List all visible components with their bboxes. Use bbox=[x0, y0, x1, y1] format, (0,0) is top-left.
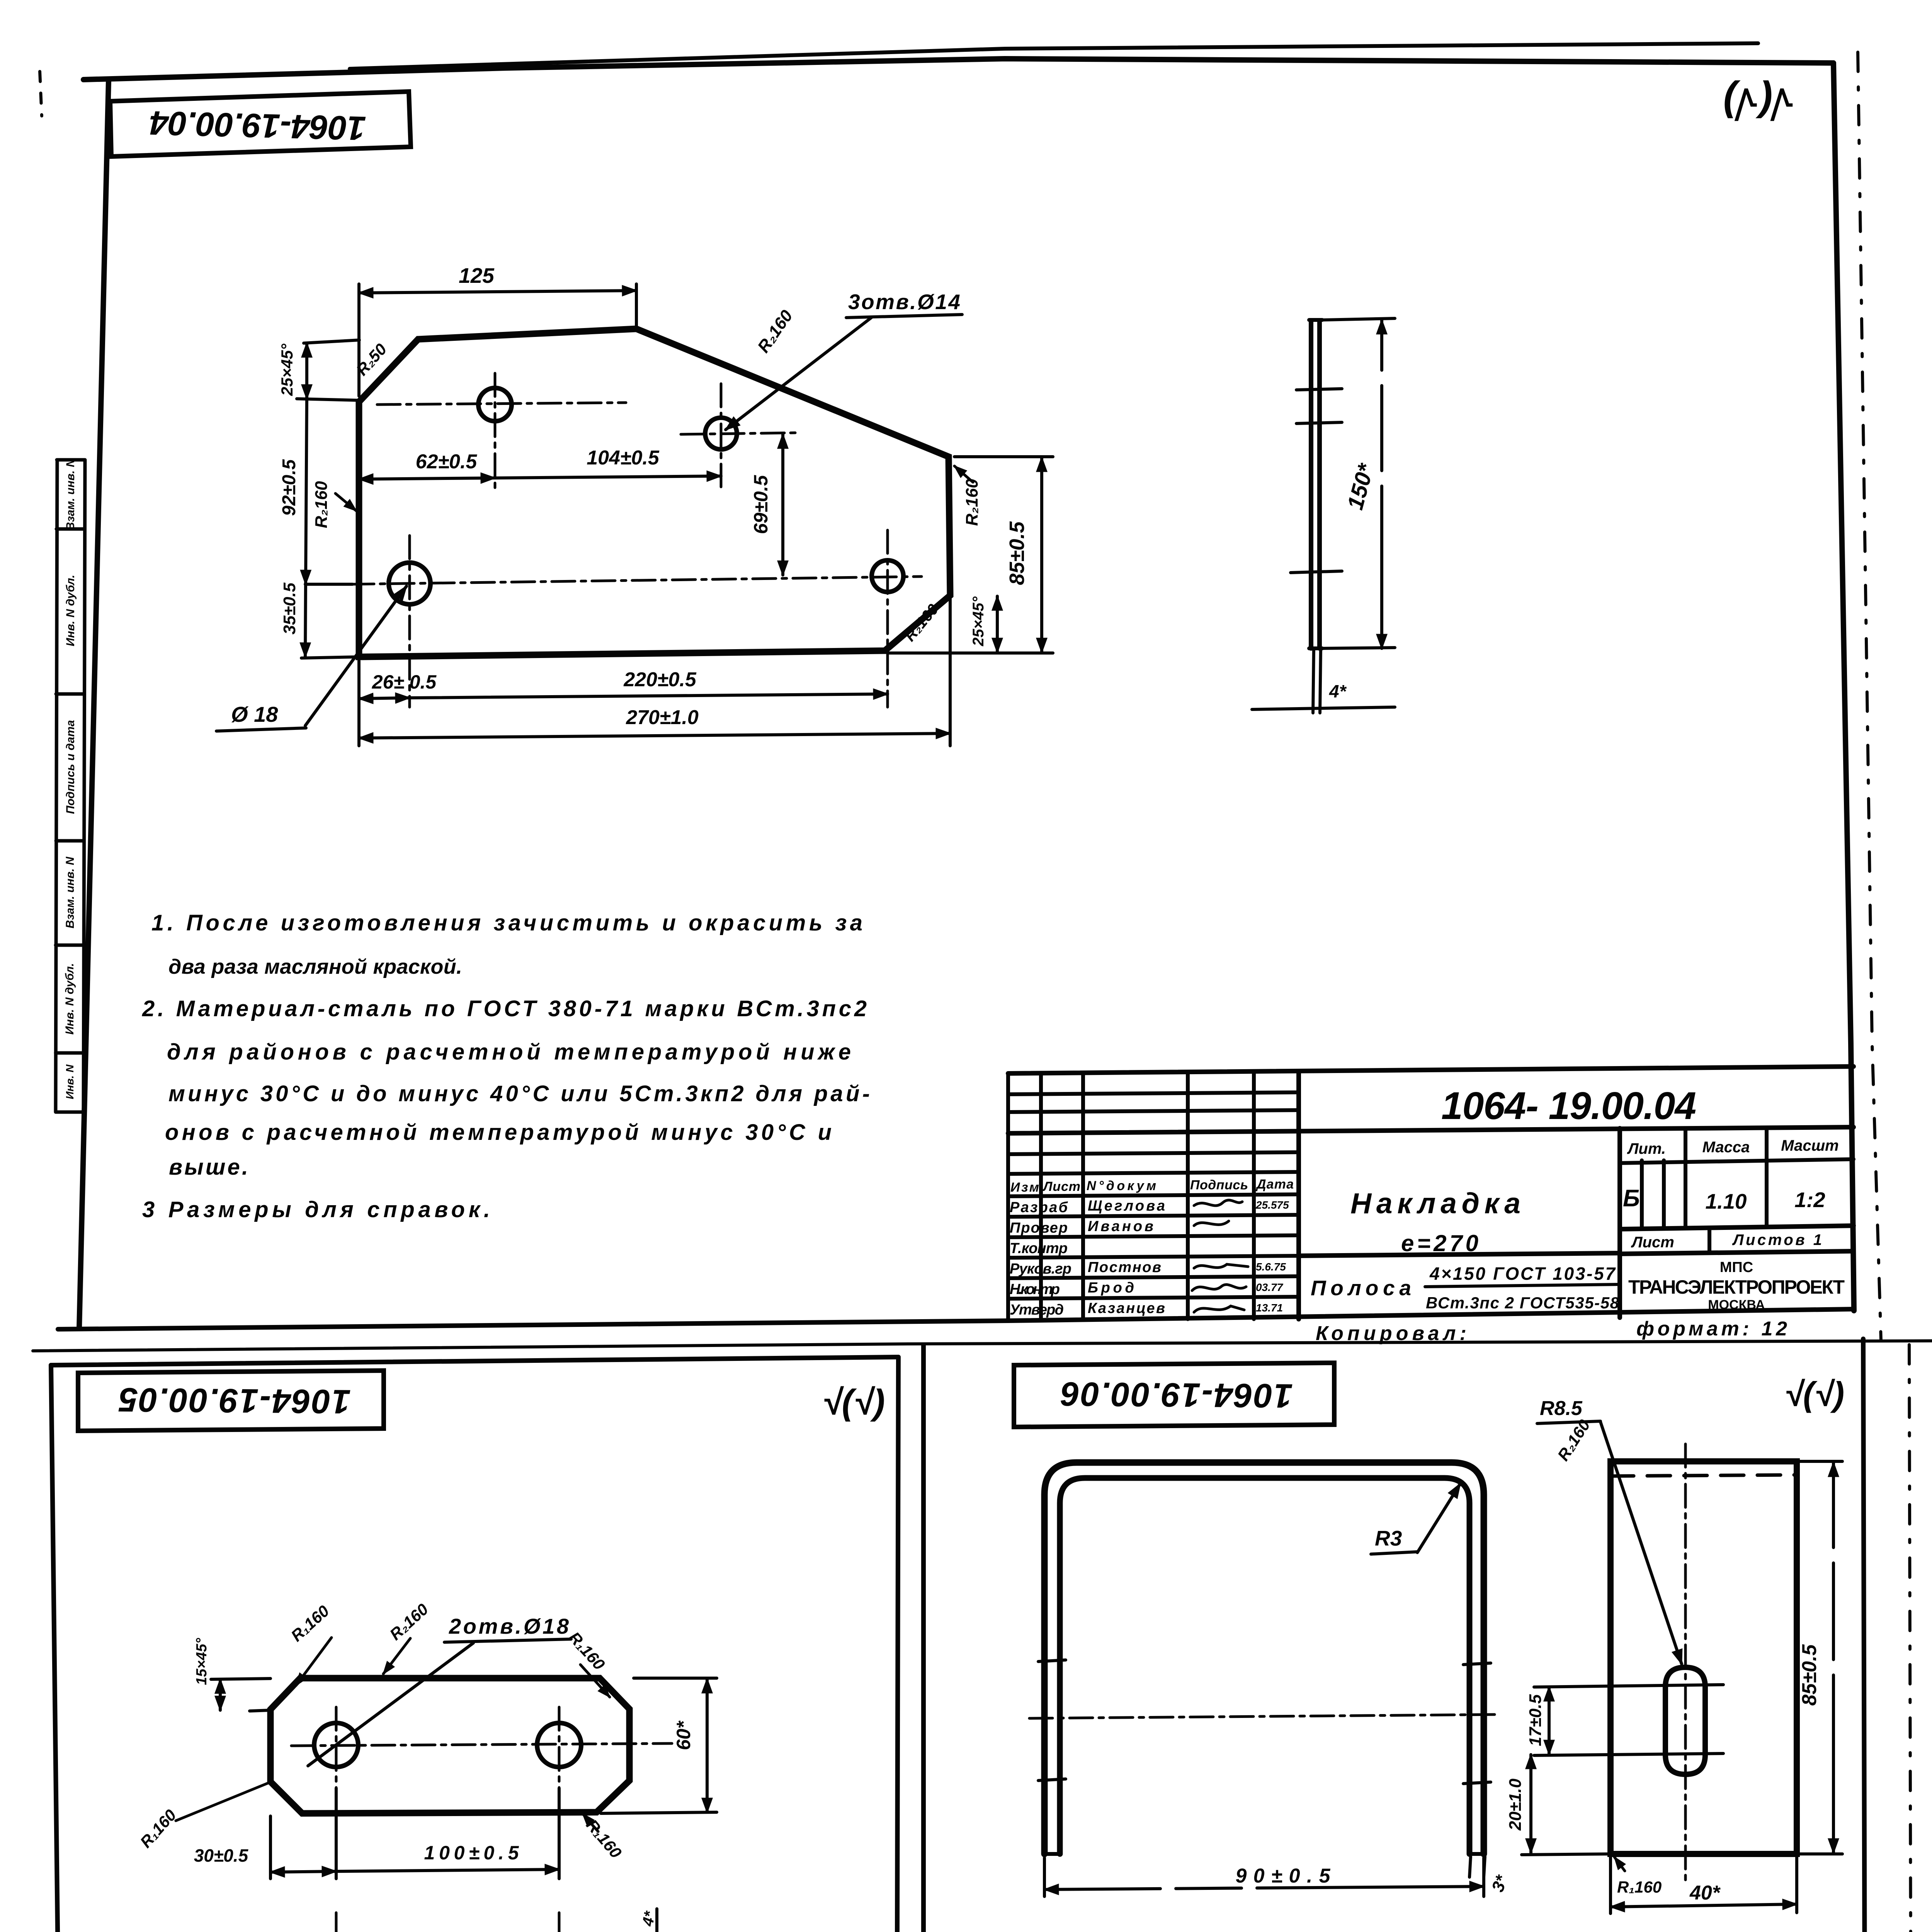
svg-text:Лист: Лист bbox=[1631, 1234, 1674, 1251]
svg-text:60*: 60* bbox=[673, 1720, 694, 1750]
svg-text:Инв. N дубл.: Инв. N дубл. bbox=[63, 963, 76, 1034]
svg-text:МОСКВА: МОСКВА bbox=[1708, 1298, 1765, 1312]
svg-text:1064- 19.00.04: 1064- 19.00.04 bbox=[1441, 1084, 1696, 1128]
svg-text:ВСт.3пс 2 ГОСТ535-58: ВСт.3пс 2 ГОСТ535-58 bbox=[1426, 1294, 1619, 1312]
svg-text:125: 125 bbox=[459, 264, 495, 287]
svg-text:25.575: 25.575 bbox=[1255, 1199, 1289, 1211]
svg-text:15×45°: 15×45° bbox=[194, 1638, 210, 1685]
svg-text:35±0.5: 35±0.5 bbox=[280, 582, 299, 634]
svg-text:1064-19.00.04: 1064-19.00.04 bbox=[149, 104, 366, 148]
svg-text:17±0.5: 17±0.5 bbox=[1526, 1694, 1545, 1746]
svg-text:1.10: 1.10 bbox=[1705, 1189, 1747, 1213]
svg-text:ТРАНСЭЛЕКТРОПРОЕКТ: ТРАНСЭЛЕКТРОПРОЕКТ bbox=[1628, 1276, 1845, 1298]
svg-text:Подпись: Подпись bbox=[1190, 1178, 1248, 1192]
svg-text:R₂160: R₂160 bbox=[963, 478, 981, 526]
svg-text:26± 0.5: 26± 0.5 bbox=[372, 671, 437, 693]
svg-text:92±0.5: 92±0.5 bbox=[279, 459, 299, 516]
svg-text:МПС: МПС bbox=[1720, 1259, 1753, 1276]
svg-text:е=270: е=270 bbox=[1401, 1230, 1478, 1256]
svg-text:формат: 12: формат: 12 bbox=[1636, 1318, 1787, 1340]
svg-text:40*: 40* bbox=[1689, 1882, 1721, 1904]
svg-text:Изм: Изм bbox=[1010, 1180, 1039, 1195]
svg-text:Масшт: Масшт bbox=[1781, 1137, 1838, 1154]
svg-text:R₂160: R₂160 bbox=[312, 481, 331, 528]
svg-text:104±0.5: 104±0.5 bbox=[587, 447, 660, 469]
svg-text:220±0.5: 220±0.5 bbox=[623, 668, 697, 691]
svg-text:Н.контр: Н.контр bbox=[1010, 1281, 1060, 1298]
svg-text:Лит.: Лит. bbox=[1627, 1140, 1666, 1157]
svg-text:5.6.75: 5.6.75 bbox=[1256, 1261, 1286, 1273]
svg-text:1:2: 1:2 bbox=[1794, 1188, 1825, 1212]
svg-text:2отв.Ø18: 2отв.Ø18 bbox=[449, 1614, 569, 1638]
svg-text:два раза масляной краской.: два раза масляной краской. bbox=[168, 955, 462, 978]
svg-text:25×45°: 25×45° bbox=[970, 596, 987, 646]
svg-text:Лист: Лист bbox=[1042, 1179, 1080, 1194]
svg-text:R3: R3 bbox=[1375, 1526, 1402, 1550]
svg-text:3 Размеры для справок.: 3 Размеры для справок. bbox=[142, 1197, 490, 1222]
svg-text:25×45°: 25×45° bbox=[278, 343, 296, 396]
svg-text:69±0.5: 69±0.5 bbox=[750, 475, 772, 534]
svg-text:выше.: выше. bbox=[169, 1155, 248, 1180]
svg-text:Инв. N: Инв. N bbox=[64, 1064, 76, 1099]
svg-text:62±0.5: 62±0.5 bbox=[416, 451, 478, 473]
svg-text:Накладка: Накладка bbox=[1350, 1187, 1520, 1219]
svg-text:R8.5: R8.5 bbox=[1540, 1397, 1583, 1420]
svg-text:13.71: 13.71 bbox=[1256, 1302, 1283, 1314]
svg-text:Масса: Масса bbox=[1702, 1139, 1750, 1156]
svg-text:85±0.5: 85±0.5 bbox=[1005, 521, 1029, 585]
svg-text:Взам. инв. N: Взам. инв. N bbox=[64, 856, 77, 929]
svg-text:Провер: Провер bbox=[1010, 1220, 1068, 1236]
svg-text:Б: Б bbox=[1623, 1185, 1640, 1212]
svg-text:Ø 18: Ø 18 bbox=[231, 702, 278, 726]
svg-text:√(√): √(√) bbox=[1784, 1375, 1844, 1413]
svg-text:√(√): √(√) bbox=[1723, 80, 1795, 125]
svg-text:Казанцев: Казанцев bbox=[1088, 1300, 1165, 1316]
svg-text:Подпись и дата: Подпись и дата bbox=[64, 720, 77, 814]
svg-text:85±0.5: 85±0.5 bbox=[1798, 1644, 1821, 1706]
svg-text:3отв.Ø14: 3отв.Ø14 bbox=[848, 290, 960, 314]
svg-text:4×150 ГОСТ 103-57: 4×150 ГОСТ 103-57 bbox=[1429, 1264, 1616, 1284]
svg-text:Взам. инв. N: Взам. инв. N bbox=[64, 458, 77, 531]
svg-text:R₁160: R₁160 bbox=[1617, 1878, 1662, 1896]
svg-text:1064-19.00.06: 1064-19.00.06 bbox=[1060, 1375, 1293, 1415]
svg-text:Утверд: Утверд bbox=[1010, 1302, 1064, 1318]
svg-text:30±0.5: 30±0.5 bbox=[194, 1845, 249, 1866]
svg-text:Руков.гр: Руков.гр bbox=[1010, 1261, 1071, 1277]
svg-text:√(√): √(√) bbox=[822, 1383, 885, 1422]
svg-text:03.77: 03.77 bbox=[1256, 1281, 1283, 1293]
svg-text:270±1.0: 270±1.0 bbox=[626, 706, 699, 729]
svg-text:4*: 4* bbox=[1329, 681, 1347, 701]
svg-text:Инв. N дубл.: Инв. N дубл. bbox=[64, 575, 77, 646]
svg-text:Щеглова: Щеглова bbox=[1088, 1198, 1165, 1214]
svg-text:Дата: Дата bbox=[1255, 1177, 1294, 1192]
svg-text:Т.контр: Т.контр bbox=[1010, 1240, 1068, 1257]
svg-text:Разраб: Разраб bbox=[1010, 1199, 1068, 1216]
svg-text:1064-19.00.05: 1064-19.00.05 bbox=[118, 1381, 351, 1421]
svg-text:20±1.0: 20±1.0 bbox=[1506, 1778, 1525, 1831]
